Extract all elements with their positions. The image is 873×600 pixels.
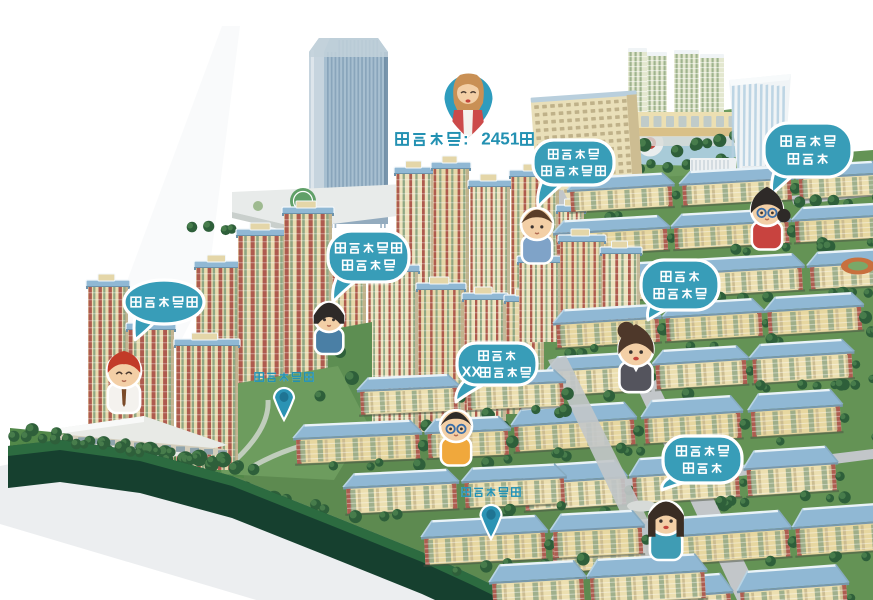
svg-text:XX: XX bbox=[462, 364, 482, 380]
svg-text::: : bbox=[463, 130, 469, 149]
svg-text:2451: 2451 bbox=[481, 130, 520, 149]
